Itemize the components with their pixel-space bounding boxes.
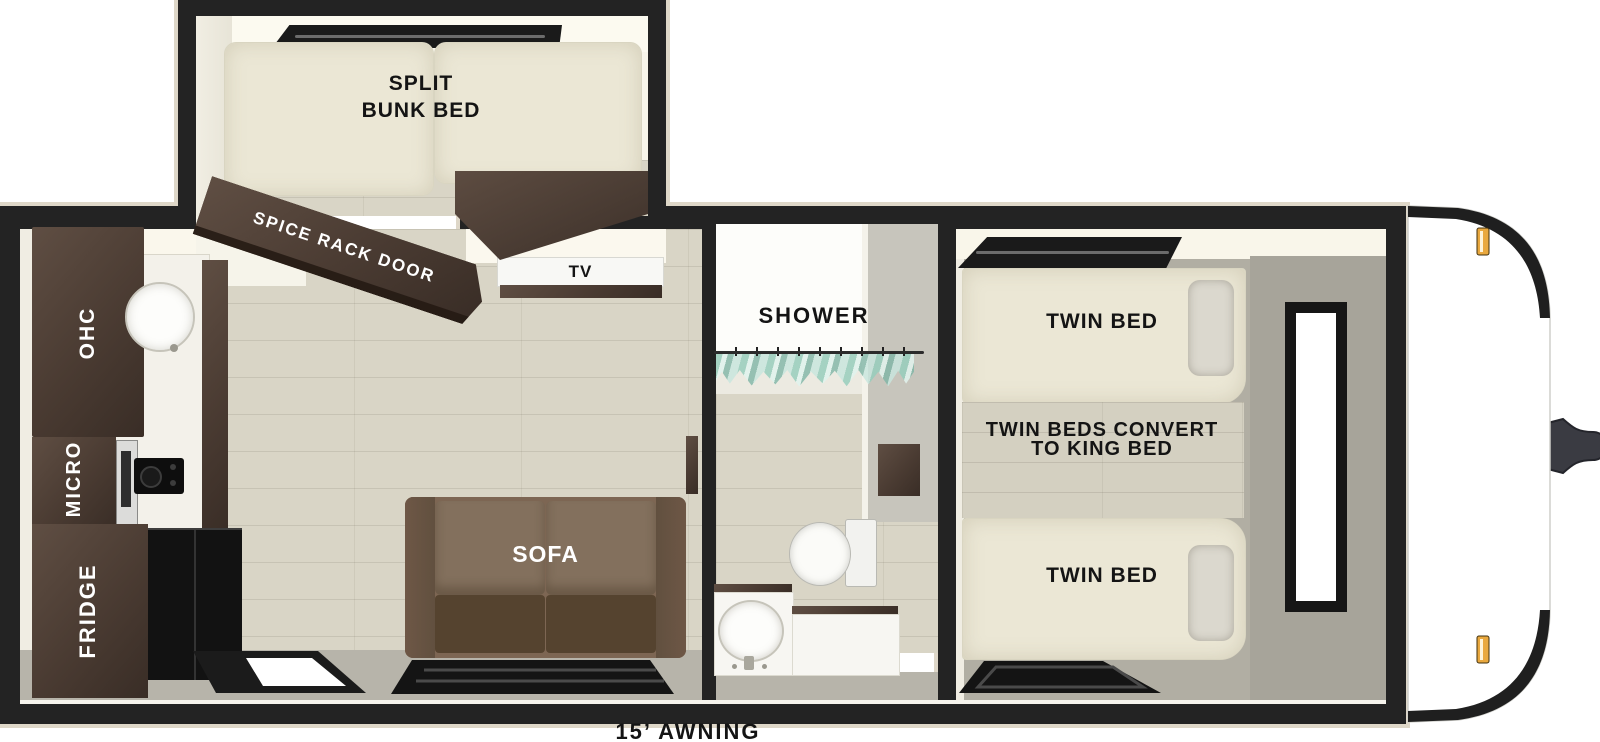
convert-label-line2: TO KING BED <box>956 440 1248 459</box>
sofa-seat-cushion <box>435 595 545 653</box>
front-cap-trim-top <box>1408 206 1550 318</box>
wall-inner-seam <box>20 700 1386 704</box>
linen-shelf <box>878 444 920 496</box>
bedroom-window-icon <box>1285 302 1347 612</box>
bunk-wall-left <box>178 0 196 218</box>
sofa-armrest-left <box>405 497 435 658</box>
marker-light-highlight <box>1480 639 1483 660</box>
burner-icon <box>140 466 162 488</box>
sink-faucet-icon <box>170 344 178 352</box>
sofa-label: SOFA <box>405 541 686 568</box>
kitchen-pantry-cabinet <box>202 260 228 536</box>
pillow-icon <box>1188 545 1234 641</box>
exterior-wall-front <box>1384 206 1406 724</box>
sofa-armrest-right <box>656 497 686 658</box>
shower-label: SHOWER <box>716 303 912 329</box>
front-cap-trim-bottom <box>1408 610 1550 722</box>
bunk-wall-top <box>178 0 666 16</box>
shower-curtain-rod-icon <box>714 351 924 354</box>
twin-bed-rear-label: TWIN BED <box>956 564 1248 588</box>
bunk-wall-right <box>648 0 666 230</box>
sofa: SOFA <box>405 497 686 658</box>
tv-label: TV <box>498 258 663 286</box>
vent-slat <box>295 35 544 38</box>
bathroom-counter <box>792 614 900 676</box>
bunk-label-line2: BUNK BED <box>300 97 542 124</box>
floorplan: TV SPICE RACK DOOR SOFA <box>0 0 1600 742</box>
interior-wall-bathroom-right <box>938 206 956 722</box>
vent-slat <box>976 251 1169 254</box>
twin-bed-front-label: TWIN BED <box>956 310 1248 334</box>
tv-shelf <box>500 285 662 298</box>
roof-vent-bedroom-icon <box>958 237 1182 268</box>
tv-niche-wall <box>460 214 666 230</box>
bunk-room-label: SPLIT BUNK BED <box>300 70 542 124</box>
micro-label: MICRO <box>63 419 85 539</box>
marker-light-top-icon <box>1477 228 1489 255</box>
exterior-wall <box>0 206 22 724</box>
ohc-label: OHC <box>77 273 99 393</box>
wall-cabinet-small <box>686 436 698 494</box>
marker-light-highlight <box>1480 231 1483 252</box>
sink-faucet-icon <box>744 656 754 670</box>
kitchen-sink-icon <box>125 282 195 352</box>
front-cap <box>1408 206 1550 722</box>
fridge-label: FRIDGE <box>77 551 99 671</box>
marker-light-bottom-icon <box>1477 636 1489 663</box>
cooktop-icon <box>134 458 184 494</box>
awning-label: 15’ AWNING <box>538 721 838 742</box>
faucet-handle-icon <box>732 664 737 669</box>
king-convert-label: TWIN BEDS CONVERT TO KING BED <box>956 421 1248 459</box>
refrigerator <box>148 528 242 680</box>
microwave-door <box>121 451 131 507</box>
burner-knob-icon <box>170 480 176 486</box>
hitch-coupler-icon <box>1540 419 1600 473</box>
faucet-handle-icon <box>762 664 767 669</box>
tv-panel: TV <box>497 257 664 287</box>
sofa-seat-cushion <box>546 595 656 653</box>
burner-knob-icon <box>170 464 176 470</box>
bunk-label-line1: SPLIT <box>300 70 542 97</box>
toilet-bowl-icon <box>789 522 851 586</box>
bathroom-sink-icon <box>718 600 784 662</box>
